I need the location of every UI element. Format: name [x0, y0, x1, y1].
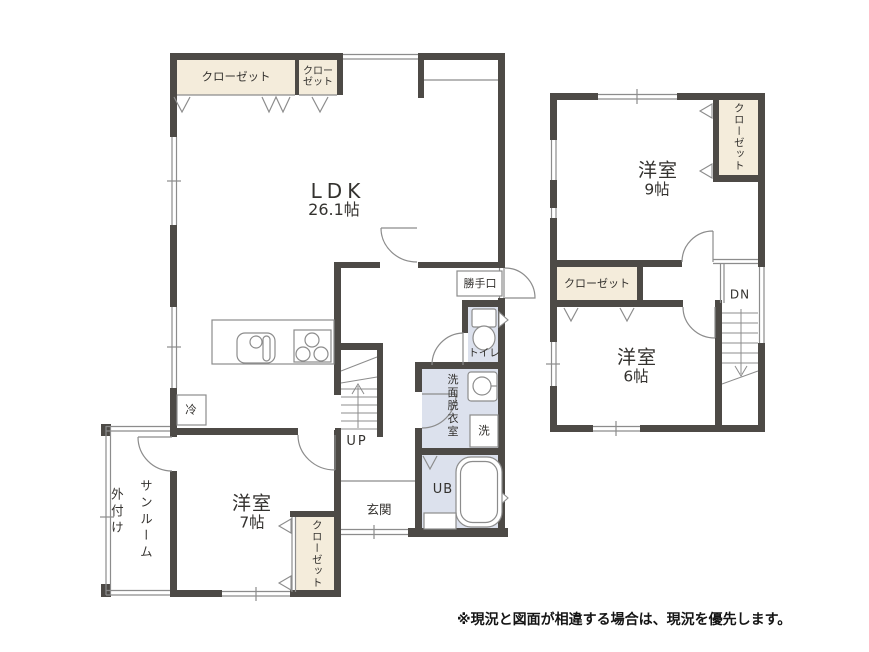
toilet-door: [432, 333, 463, 365]
entrance-label: 玄関: [366, 503, 391, 517]
back-door-swing: [505, 268, 535, 298]
room7-size-label: 7帖: [239, 514, 264, 531]
back-door-label: 勝手口: [464, 278, 497, 290]
sink-icon: [237, 333, 275, 363]
washbasin-icon: [468, 372, 497, 401]
stairs-up: [341, 357, 377, 429]
disclaimer-text: ※現況と図面が相違する場合は、現況を優先します。: [457, 609, 791, 629]
ldk-size-label: 26.1帖: [308, 201, 360, 219]
sunroom-door: [138, 437, 172, 471]
floorplan-drawing: [0, 0, 869, 652]
ldk-label: LDK: [311, 180, 366, 202]
toilet-icon: [472, 309, 496, 350]
room6-label: 洋室: [617, 348, 657, 369]
room6-door: [683, 307, 715, 338]
fridge-label: 冷: [185, 404, 197, 417]
folding-door-icon: [279, 576, 291, 590]
sunroom-label-line2: サンルーム: [138, 479, 152, 562]
folding-door-icon: [700, 104, 712, 118]
closet-label-line2: ゼット: [303, 77, 333, 88]
room6-size-label: 6帖: [623, 368, 648, 385]
ldk-hall-door: [381, 228, 417, 262]
room9-size-label: 9帖: [644, 181, 669, 198]
room7-label: 洋室: [232, 494, 272, 515]
room9-label: 洋室: [638, 161, 678, 182]
stairs-up-label: UP: [346, 435, 367, 449]
washer-label: 洗: [478, 425, 490, 438]
folding-door-icon: [279, 519, 291, 533]
bath-counter: [424, 513, 456, 529]
floor-plan: クローゼット クロー ゼット LDK 26.1帖 勝手口 トイレ 洗面脱衣室 洗…: [0, 0, 869, 652]
stove-icon: [294, 330, 331, 362]
folding-door-icon: [700, 164, 712, 178]
closet-label: クロー ゼット: [303, 66, 333, 88]
closet-label-line1: クロー: [303, 66, 333, 77]
stairs-down: [722, 309, 758, 384]
stairs-down-label: DN: [730, 288, 750, 301]
toilet-label: トイレ: [468, 348, 500, 360]
kitchen-counter: [212, 320, 334, 364]
closet-label: クローゼット: [202, 71, 271, 84]
closet-label: クローゼット: [564, 278, 630, 290]
room7-door: [298, 435, 335, 470]
closet-label: クローゼット: [310, 520, 322, 589]
sunroom-label-line1: 外付け: [109, 487, 123, 537]
room9-door: [682, 231, 713, 262]
bath-label: UB: [433, 483, 453, 497]
washroom-label: 洗面脱衣室: [446, 374, 458, 439]
closet-label: クローゼット: [732, 103, 744, 172]
bathtub-icon: [456, 457, 502, 527]
